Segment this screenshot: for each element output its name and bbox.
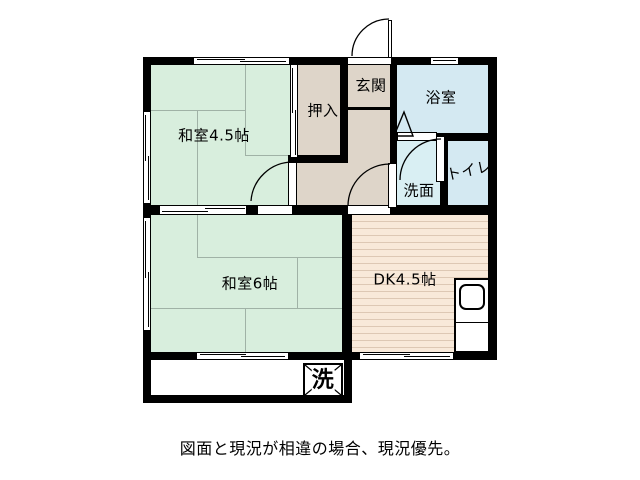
window-sash-line: [197, 59, 245, 60]
door-panel-entrance: [388, 20, 392, 58]
tatami-line: [245, 155, 290, 156]
fusuma-panel-line: [205, 208, 245, 209]
door-panel-washitsu45: [288, 162, 297, 206]
tatami-line: [197, 215, 198, 257]
wall-mid-seg3: [290, 205, 348, 215]
entrance-threshold: [348, 57, 391, 65]
fusuma-washitsu45-washitsu6: [160, 205, 246, 215]
fusuma-panel-line: [162, 211, 208, 212]
tatami-line: [197, 257, 342, 258]
fusuma-panel-line: [292, 68, 293, 113]
door-panel-bath: [397, 132, 437, 141]
door-panel-toilet: [436, 136, 445, 182]
room-label-washitsu6: 和室6帖: [222, 273, 279, 294]
kitchen-sink: [459, 284, 485, 310]
wall-mid-seg2: [246, 205, 258, 215]
window-sash-line: [363, 354, 410, 355]
genkan-step-line: [347, 107, 390, 110]
door-panel-dk: [388, 163, 397, 208]
window-sash-line: [404, 356, 450, 357]
entrance-door-arc: [352, 19, 389, 56]
room-label-senmen: 洗面: [403, 180, 434, 201]
doorway-hall-dk: [348, 205, 390, 215]
doorway-washitsu45: [258, 205, 292, 215]
window-sash-line: [241, 356, 285, 357]
hallway-floor: [293, 163, 347, 205]
window-sash-line: [148, 272, 149, 327]
tatami-line: [151, 308, 342, 309]
window-sash-line: [433, 60, 456, 61]
window-sash-line: [200, 354, 246, 355]
floorplan-page: 和室4.5帖 押入 玄関 浴室 洗面 トイレ 和室6帖 DK4.5帖 洗 図面と…: [0, 0, 640, 480]
tatami-line: [297, 257, 298, 308]
fusuma-panel-line: [295, 110, 296, 155]
window-top-bath: [431, 57, 458, 65]
room-label-washitsu45: 和室4.5帖: [178, 125, 250, 146]
wall-mid-seg1: [151, 205, 160, 215]
tatami-line: [151, 110, 245, 111]
window-sash-line: [148, 156, 149, 200]
kitchen-counter-divider: [456, 322, 488, 323]
room-label-genkan: 玄関: [355, 75, 386, 96]
wall-mid-seg4: [390, 205, 497, 215]
caption-text: 図面と現況が相違の場合、現況優先。: [180, 435, 461, 459]
window-sash-line: [145, 115, 146, 161]
wall-porch-right: [344, 360, 352, 403]
washer-symbol-label: 洗: [312, 370, 335, 392]
room-label-dk: DK4.5帖: [373, 269, 436, 290]
room-label-bath: 浴室: [425, 87, 456, 108]
wall-oshiire-right: [340, 65, 348, 155]
window-sash-line: [145, 221, 146, 278]
tatami-line: [245, 308, 246, 352]
wall-washitsu6-dk: [342, 207, 352, 360]
window-sash-line: [240, 61, 286, 62]
room-label-oshiire: 押入: [307, 100, 338, 121]
